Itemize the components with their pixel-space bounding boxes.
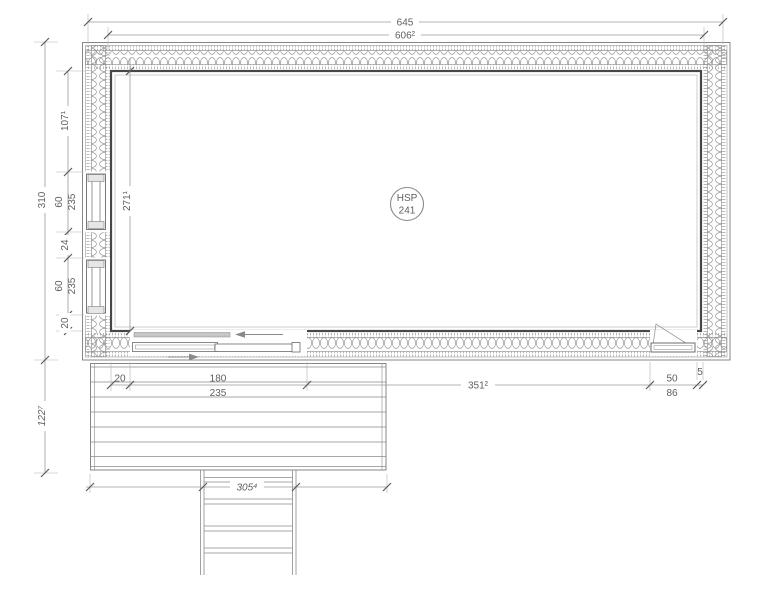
floor-plan-canvas: 645 606² 310 107¹ 60 235 24 60 235 [0, 0, 775, 590]
dim-corner-gap: 5 [697, 367, 703, 378]
dim-top-overall: 645 [397, 18, 414, 29]
sliding-door-leaf-2 [215, 344, 296, 352]
dim-window1-width: 60 [54, 196, 65, 208]
room-stamp: HSP 241 [391, 188, 424, 221]
door-leaf [651, 343, 695, 352]
window-left-2 [83, 258, 110, 316]
dim-left-overall: 310 [37, 191, 48, 208]
wall-top [86, 46, 727, 70]
dim-left-wall-top: 107¹ [60, 110, 71, 131]
sliding-door [130, 330, 307, 360]
dim-top-inner: 606² [395, 31, 416, 42]
dim-bottom-wall: 351² [468, 381, 489, 392]
dim-left-pier: 24 [60, 239, 71, 251]
terrace-deck [91, 364, 387, 471]
dim-bottom-offset: 20 [114, 374, 126, 385]
room-stamp-number: 241 [399, 206, 416, 217]
dim-door-height: 86 [666, 388, 678, 399]
wall-right [704, 46, 727, 357]
dim-slide-door-height: 235 [210, 388, 227, 399]
dim-interior-depth: 271¹ [122, 190, 133, 211]
sliding-door-leaf-1 [133, 343, 218, 352]
dim-terrace-depth: 122⁷ [37, 406, 48, 427]
room-stamp-code: HSP [397, 193, 418, 204]
dim-window2-width: 60 [54, 280, 65, 292]
dim-slide-door-width: 180 [210, 374, 227, 385]
dim-window1-height: 235 [67, 193, 78, 210]
dim-terrace-width: 305⁴ [236, 483, 257, 494]
window-left-1 [83, 172, 110, 233]
dim-window2-height: 235 [67, 277, 78, 294]
dim-door-width: 50 [666, 374, 678, 385]
sliding-door-track [134, 333, 230, 338]
dim-left-wall-bottom: 20 [60, 317, 71, 329]
